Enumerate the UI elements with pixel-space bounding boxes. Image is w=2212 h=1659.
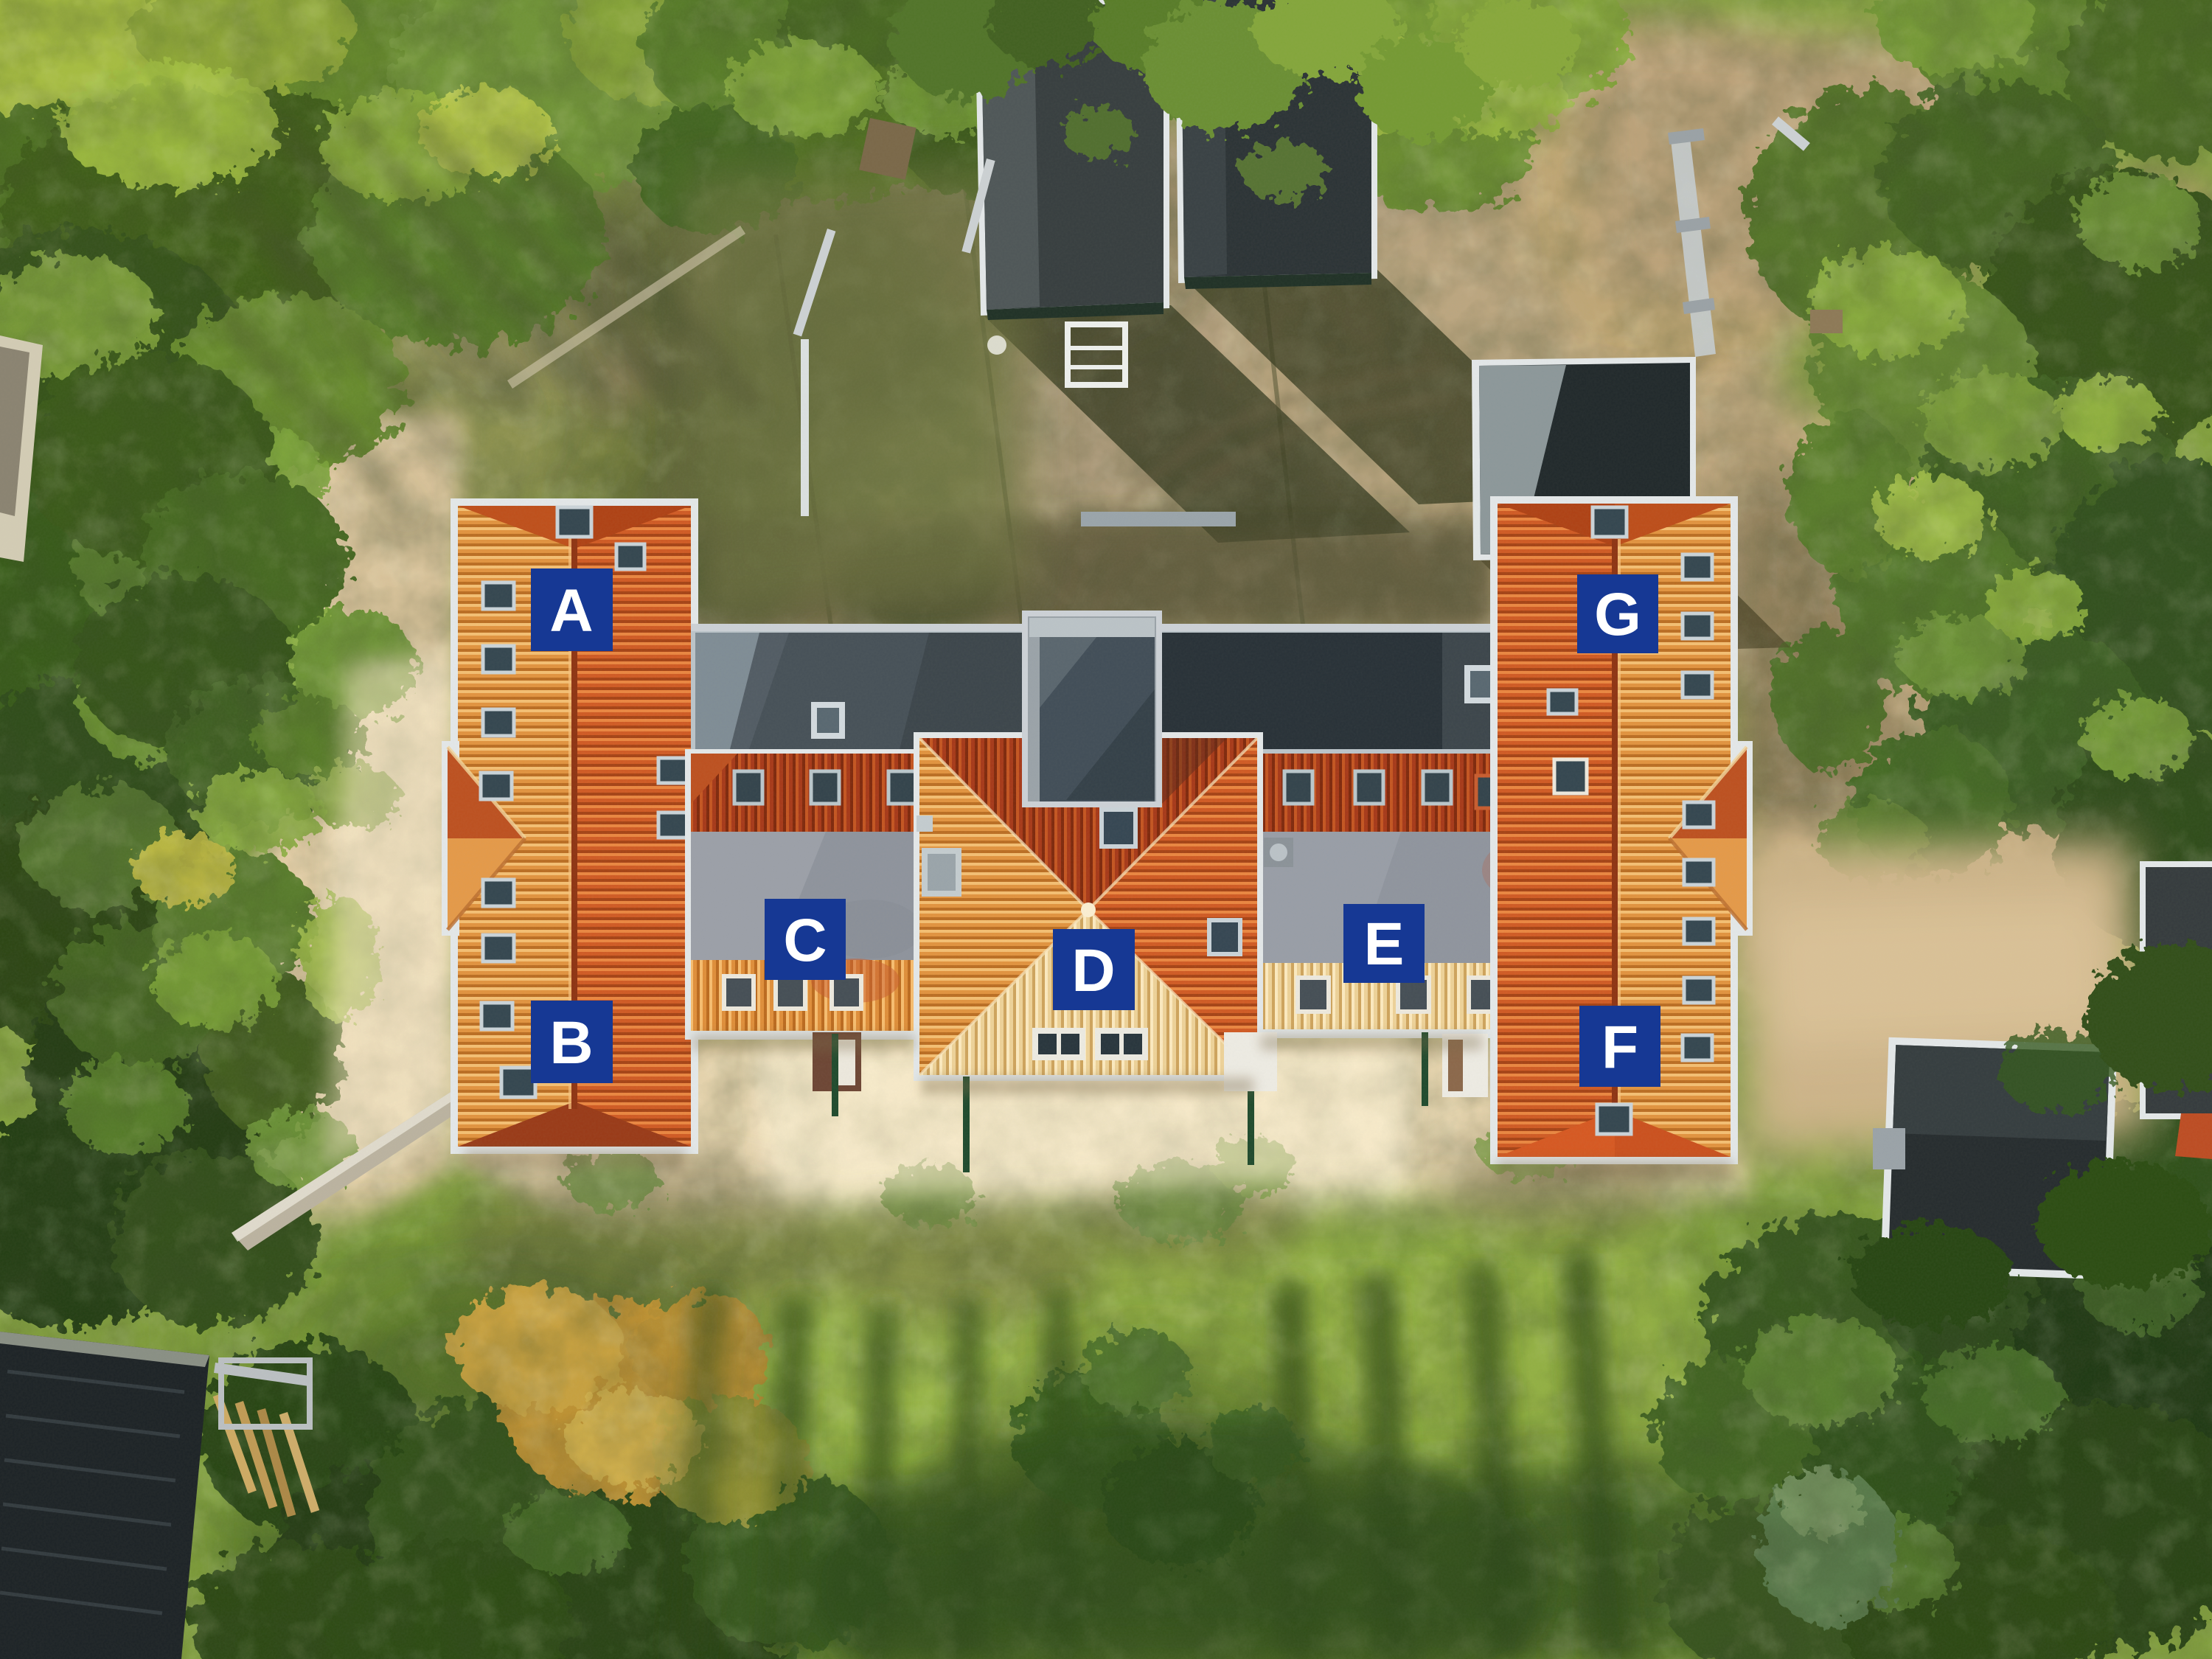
svg-text:C: C bbox=[783, 907, 827, 974]
svg-text:D: D bbox=[1071, 937, 1115, 1004]
svg-text:B: B bbox=[549, 1009, 593, 1077]
svg-text:F: F bbox=[1601, 1014, 1638, 1081]
svg-text:A: A bbox=[549, 577, 593, 644]
svg-text:G: G bbox=[1594, 581, 1641, 648]
svg-text:E: E bbox=[1364, 911, 1405, 978]
